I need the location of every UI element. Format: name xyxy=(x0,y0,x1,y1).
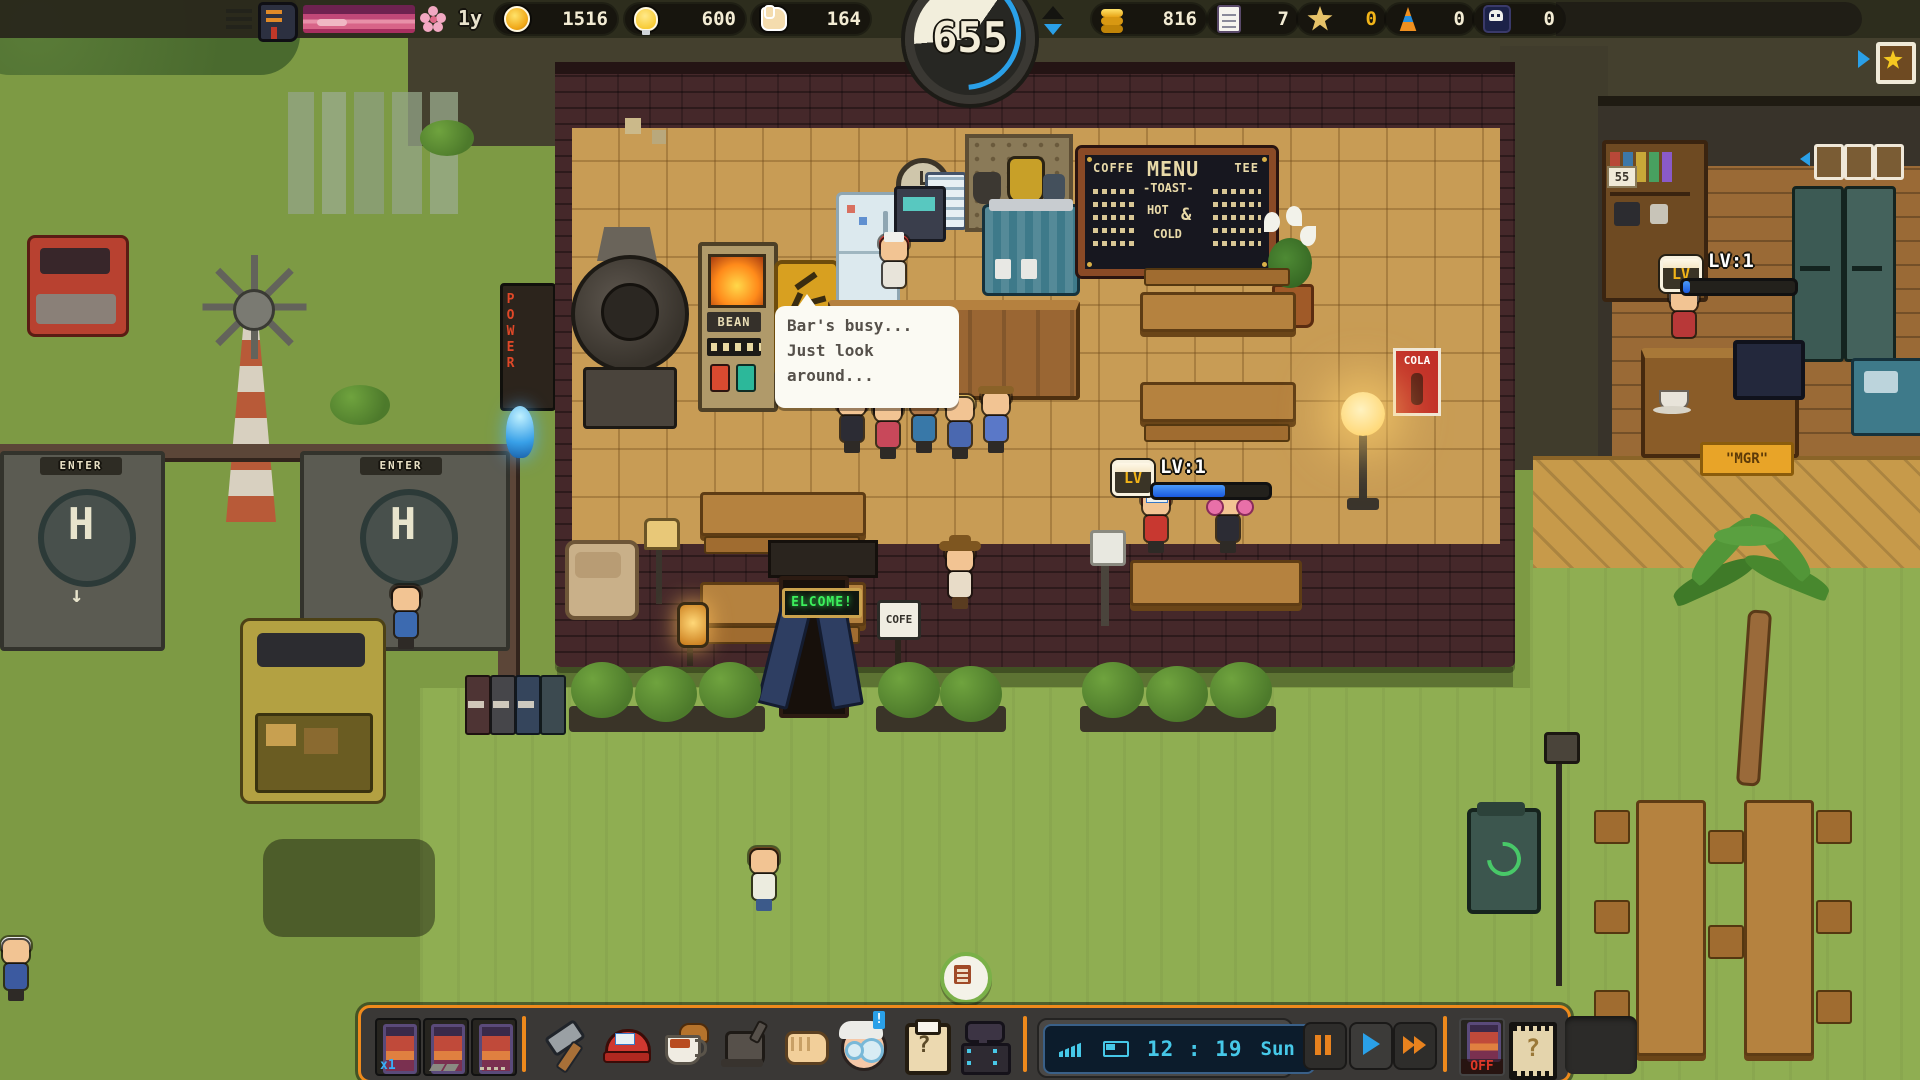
hedge-right xyxy=(876,662,1006,736)
greet-fist-button[interactable] xyxy=(779,1019,831,1071)
menu-board: COFFE MENU TEE -TOAST- HOT & COLD xyxy=(1078,148,1276,276)
power-off-slot[interactable]: OFF xyxy=(1459,1018,1505,1076)
fast-forward-button[interactable] xyxy=(1393,1022,1437,1070)
hamburger-menu-icon[interactable] xyxy=(226,9,252,29)
staff-cap-button[interactable] xyxy=(599,1019,651,1071)
lv-progress-customer xyxy=(1150,482,1272,500)
empty-slot[interactable] xyxy=(1565,1016,1637,1074)
bubble-tail xyxy=(797,294,817,308)
cafe-table-left-1 xyxy=(700,492,866,536)
ticket-question: ? xyxy=(1513,1034,1553,1062)
stars-value: 0 xyxy=(1366,8,1377,30)
room-door-icon xyxy=(1467,1022,1501,1062)
cafe-bench-topright-1[interactable] xyxy=(1144,268,1290,286)
journal-book-icon[interactable] xyxy=(258,2,298,42)
side-lamp xyxy=(640,518,680,614)
skulls-counter: 0 xyxy=(1474,4,1564,34)
roast-pot-button[interactable] xyxy=(719,1019,771,1071)
star-badge-icon[interactable] xyxy=(1876,42,1916,84)
npc-seated-cap[interactable]: MG xyxy=(1140,492,1172,554)
down-arrow: ↓ xyxy=(70,583,83,608)
menu-toast: -TOAST- xyxy=(1143,181,1194,195)
mystery-ticket-button[interactable]: ? xyxy=(1509,1022,1557,1080)
timer-value: 655 xyxy=(914,13,1026,62)
room-slot-3[interactable] xyxy=(471,1018,517,1076)
grinder-machine-button[interactable] xyxy=(957,1019,1009,1071)
doormat xyxy=(768,540,878,578)
cafe-roof-edge xyxy=(555,62,1515,74)
receipt-icon xyxy=(1217,5,1241,33)
kitchen-sink xyxy=(1851,358,1920,436)
enter-sign-right: ENTER xyxy=(360,457,442,475)
bean-button-green[interactable] xyxy=(736,364,756,392)
npc-car-guy[interactable] xyxy=(390,588,422,650)
outdoor-chairs-right[interactable] xyxy=(1816,810,1850,1050)
floor-lamp-glowing[interactable] xyxy=(1335,392,1391,514)
corner-blue-arrow[interactable] xyxy=(1858,50,1870,68)
dialogue-line-3: around... xyxy=(787,364,947,389)
off-label: OFF xyxy=(1461,1059,1503,1074)
menu-col-right-header: TEE xyxy=(1234,161,1259,175)
menu-cold: COLD xyxy=(1153,227,1182,241)
bean-button-red[interactable] xyxy=(710,364,730,392)
shelf-tag: 55 xyxy=(1607,166,1637,188)
roaster-base xyxy=(583,367,677,429)
pickup-car[interactable] xyxy=(240,618,386,804)
hedge-right-2 xyxy=(1080,662,1276,736)
coins-value: 1516 xyxy=(562,8,608,30)
npc-seated-headphones[interactable] xyxy=(1212,492,1244,554)
cafe-sign-text: COFE xyxy=(877,600,921,640)
windmill-hub xyxy=(233,289,275,331)
npc-customer-hat-beard[interactable] xyxy=(980,392,1012,454)
game-viewport: ENTER H ↓ ENTER H POWER xyxy=(0,0,1920,1080)
menu-col-left-header: COFFE xyxy=(1093,161,1134,175)
time-display: 12 : 19 xyxy=(1147,1037,1243,1061)
npc-manager[interactable] xyxy=(1668,288,1700,350)
cafe-table-topright-1 xyxy=(1140,292,1296,332)
outdoor-table-2 xyxy=(1744,800,1814,1056)
glasses-icon xyxy=(845,1041,864,1060)
task-marker[interactable] xyxy=(940,952,992,1004)
enter-sign-left: ENTER xyxy=(40,457,122,475)
cafe-table-topright-2 xyxy=(1140,382,1296,422)
espresso-machine[interactable] xyxy=(982,204,1080,296)
orders-value: 7 xyxy=(1278,8,1289,30)
power-strip[interactable]: POWER xyxy=(500,283,556,411)
lv-progress-customer-fill xyxy=(1153,485,1225,497)
armchair[interactable] xyxy=(565,540,639,620)
lv-label-manager: LV:1 xyxy=(1708,250,1754,272)
bean-fire-window xyxy=(708,254,766,308)
collapse-arrow-right-building[interactable] xyxy=(1800,152,1810,166)
power-label: POWER xyxy=(503,292,553,372)
lv-badge-customer: LV xyxy=(1112,460,1154,496)
welcome-sign-text: ELCOME! xyxy=(785,591,859,615)
battery-icon xyxy=(1103,1041,1129,1057)
cafe-hanging-sign: COFE xyxy=(877,600,919,670)
menu-hot: HOT xyxy=(1147,203,1169,217)
outdoor-table-1 xyxy=(1636,800,1706,1056)
bean-plate: BEAN xyxy=(707,312,761,332)
wall-lantern xyxy=(675,602,705,666)
windmill[interactable] xyxy=(196,227,306,522)
welcome-sign: ELCOME! xyxy=(782,588,862,618)
hedge-left xyxy=(569,662,765,736)
room-slot-1[interactable]: x1 xyxy=(375,1018,421,1076)
cafe-bench-topright-2[interactable] xyxy=(1144,424,1290,442)
headphones-icon xyxy=(1206,498,1224,516)
hud-extension-strip xyxy=(1556,2,1862,36)
money-value: 816 xyxy=(1163,8,1197,30)
menu-items-left xyxy=(1093,181,1137,254)
right-roof-edge xyxy=(1598,96,1920,106)
npc-barista[interactable] xyxy=(878,238,910,300)
cafe-table-center xyxy=(1130,560,1302,606)
coffee-cup-button[interactable] xyxy=(659,1019,711,1071)
toolbar-divider xyxy=(1443,1016,1447,1072)
thumbs-up-icon xyxy=(761,7,787,31)
coin-stack-icon xyxy=(1101,9,1123,17)
bush xyxy=(420,120,474,156)
wall-note xyxy=(652,130,666,144)
lv-label-customer: LV:1 xyxy=(1160,456,1206,478)
lightbulb-icon xyxy=(634,7,658,31)
lockers xyxy=(1792,186,1892,358)
desk-monitor xyxy=(1733,340,1805,400)
likes-counter: 164 xyxy=(752,4,870,34)
bean-display xyxy=(707,338,761,356)
recycle-icon xyxy=(1480,835,1528,883)
orders-counter: 7 xyxy=(1208,4,1298,34)
build-hammer-button[interactable] xyxy=(539,1019,591,1071)
wall-note xyxy=(625,118,641,134)
bush xyxy=(330,385,390,425)
dialogue-line-2: Just look xyxy=(787,339,947,364)
cones-value: 0 xyxy=(1454,8,1465,30)
coffee-roaster[interactable] xyxy=(569,227,687,427)
truck-window xyxy=(40,248,110,274)
stars-counter: 0 xyxy=(1298,4,1386,34)
outdoor-chairs-middle[interactable] xyxy=(1708,830,1742,1070)
ideas-value: 600 xyxy=(702,8,736,30)
palm-tree xyxy=(1650,530,1850,790)
cola-label: COLA xyxy=(1396,354,1438,367)
npc-corner-character[interactable] xyxy=(0,940,32,1002)
menu-amp: & xyxy=(1181,205,1191,225)
coffee-maker-shelf xyxy=(1614,202,1640,226)
coin-icon xyxy=(504,6,530,32)
napkin-stand xyxy=(1088,530,1122,636)
star-icon xyxy=(1307,6,1333,32)
room-slot-2[interactable] xyxy=(423,1018,469,1076)
helipad-left: ENTER H ↓ xyxy=(0,451,165,651)
roaster-drum-door xyxy=(601,283,659,341)
notification-badge: ! xyxy=(873,1011,885,1029)
day-display: Sun xyxy=(1261,1038,1295,1060)
ground-shadow xyxy=(263,839,435,937)
npc-waitress[interactable] xyxy=(748,850,780,912)
signal-bars-icon xyxy=(1059,1041,1085,1057)
recycle-bin[interactable] xyxy=(1467,808,1541,914)
likes-value: 164 xyxy=(827,8,861,30)
helipad-h-left: H xyxy=(38,499,124,569)
kettle-yellow xyxy=(1007,156,1045,204)
collapse-down-arrow[interactable] xyxy=(1044,24,1062,35)
character-button[interactable]: ! xyxy=(835,1019,887,1071)
cabinet-buttons[interactable] xyxy=(1814,144,1898,178)
toolbar-divider xyxy=(1023,1016,1027,1072)
menu-title: MENU xyxy=(1147,157,1199,181)
coins-counter: 1516 xyxy=(495,4,617,34)
lcd-display: 12 : 19 Sun xyxy=(1043,1024,1315,1074)
clipboard-question: ? xyxy=(905,1033,943,1058)
dialogue-line-1: Bar's busy... xyxy=(787,314,947,339)
room-slot-multiplier: x1 xyxy=(380,1058,396,1073)
season-flower-icon xyxy=(420,6,446,32)
menu-items-right xyxy=(1213,181,1261,254)
screenshot-banner[interactable] xyxy=(303,5,415,33)
truck-bed xyxy=(36,294,116,324)
lv-progress-manager xyxy=(1680,278,1798,296)
cola-poster: COLA xyxy=(1393,348,1441,416)
outdoor-chairs-left[interactable] xyxy=(1594,810,1628,1050)
bottom-toolbar: x1 xyxy=(358,1005,1571,1080)
red-truck[interactable] xyxy=(27,235,129,337)
collapse-up-arrow[interactable] xyxy=(1042,6,1064,19)
car-windshield xyxy=(257,633,365,667)
skull-icon xyxy=(1483,5,1511,33)
sign-pole xyxy=(1544,732,1574,986)
money-counter: 816 xyxy=(1092,4,1206,34)
toolbar-divider xyxy=(522,1016,526,1072)
play-button[interactable] xyxy=(1349,1022,1393,1070)
helipad-h-right: H xyxy=(360,499,446,569)
clock-bezel: 12 : 19 Sun xyxy=(1037,1018,1293,1078)
alley-dark xyxy=(1500,46,1608,470)
mgr-plate: "MGR" xyxy=(1700,442,1794,476)
bean-machine[interactable]: BEAN xyxy=(698,242,778,412)
ideas-counter: 600 xyxy=(625,4,745,34)
season-label: 1y xyxy=(458,6,482,30)
tasks-clipboard-button[interactable]: ? xyxy=(899,1019,951,1071)
traffic-cone-icon xyxy=(1395,7,1421,31)
trash-bins[interactable] xyxy=(465,671,565,735)
dialogue-bubble[interactable]: Bar's busy... Just look around... xyxy=(775,306,959,408)
skulls-value: 0 xyxy=(1544,8,1555,30)
cones-counter: 0 xyxy=(1386,4,1474,34)
lv-progress-manager-fill xyxy=(1683,281,1690,293)
pause-button[interactable] xyxy=(1303,1022,1347,1070)
player-character[interactable] xyxy=(944,548,976,610)
power-flame xyxy=(506,406,534,458)
car-trunk-open xyxy=(255,713,373,793)
